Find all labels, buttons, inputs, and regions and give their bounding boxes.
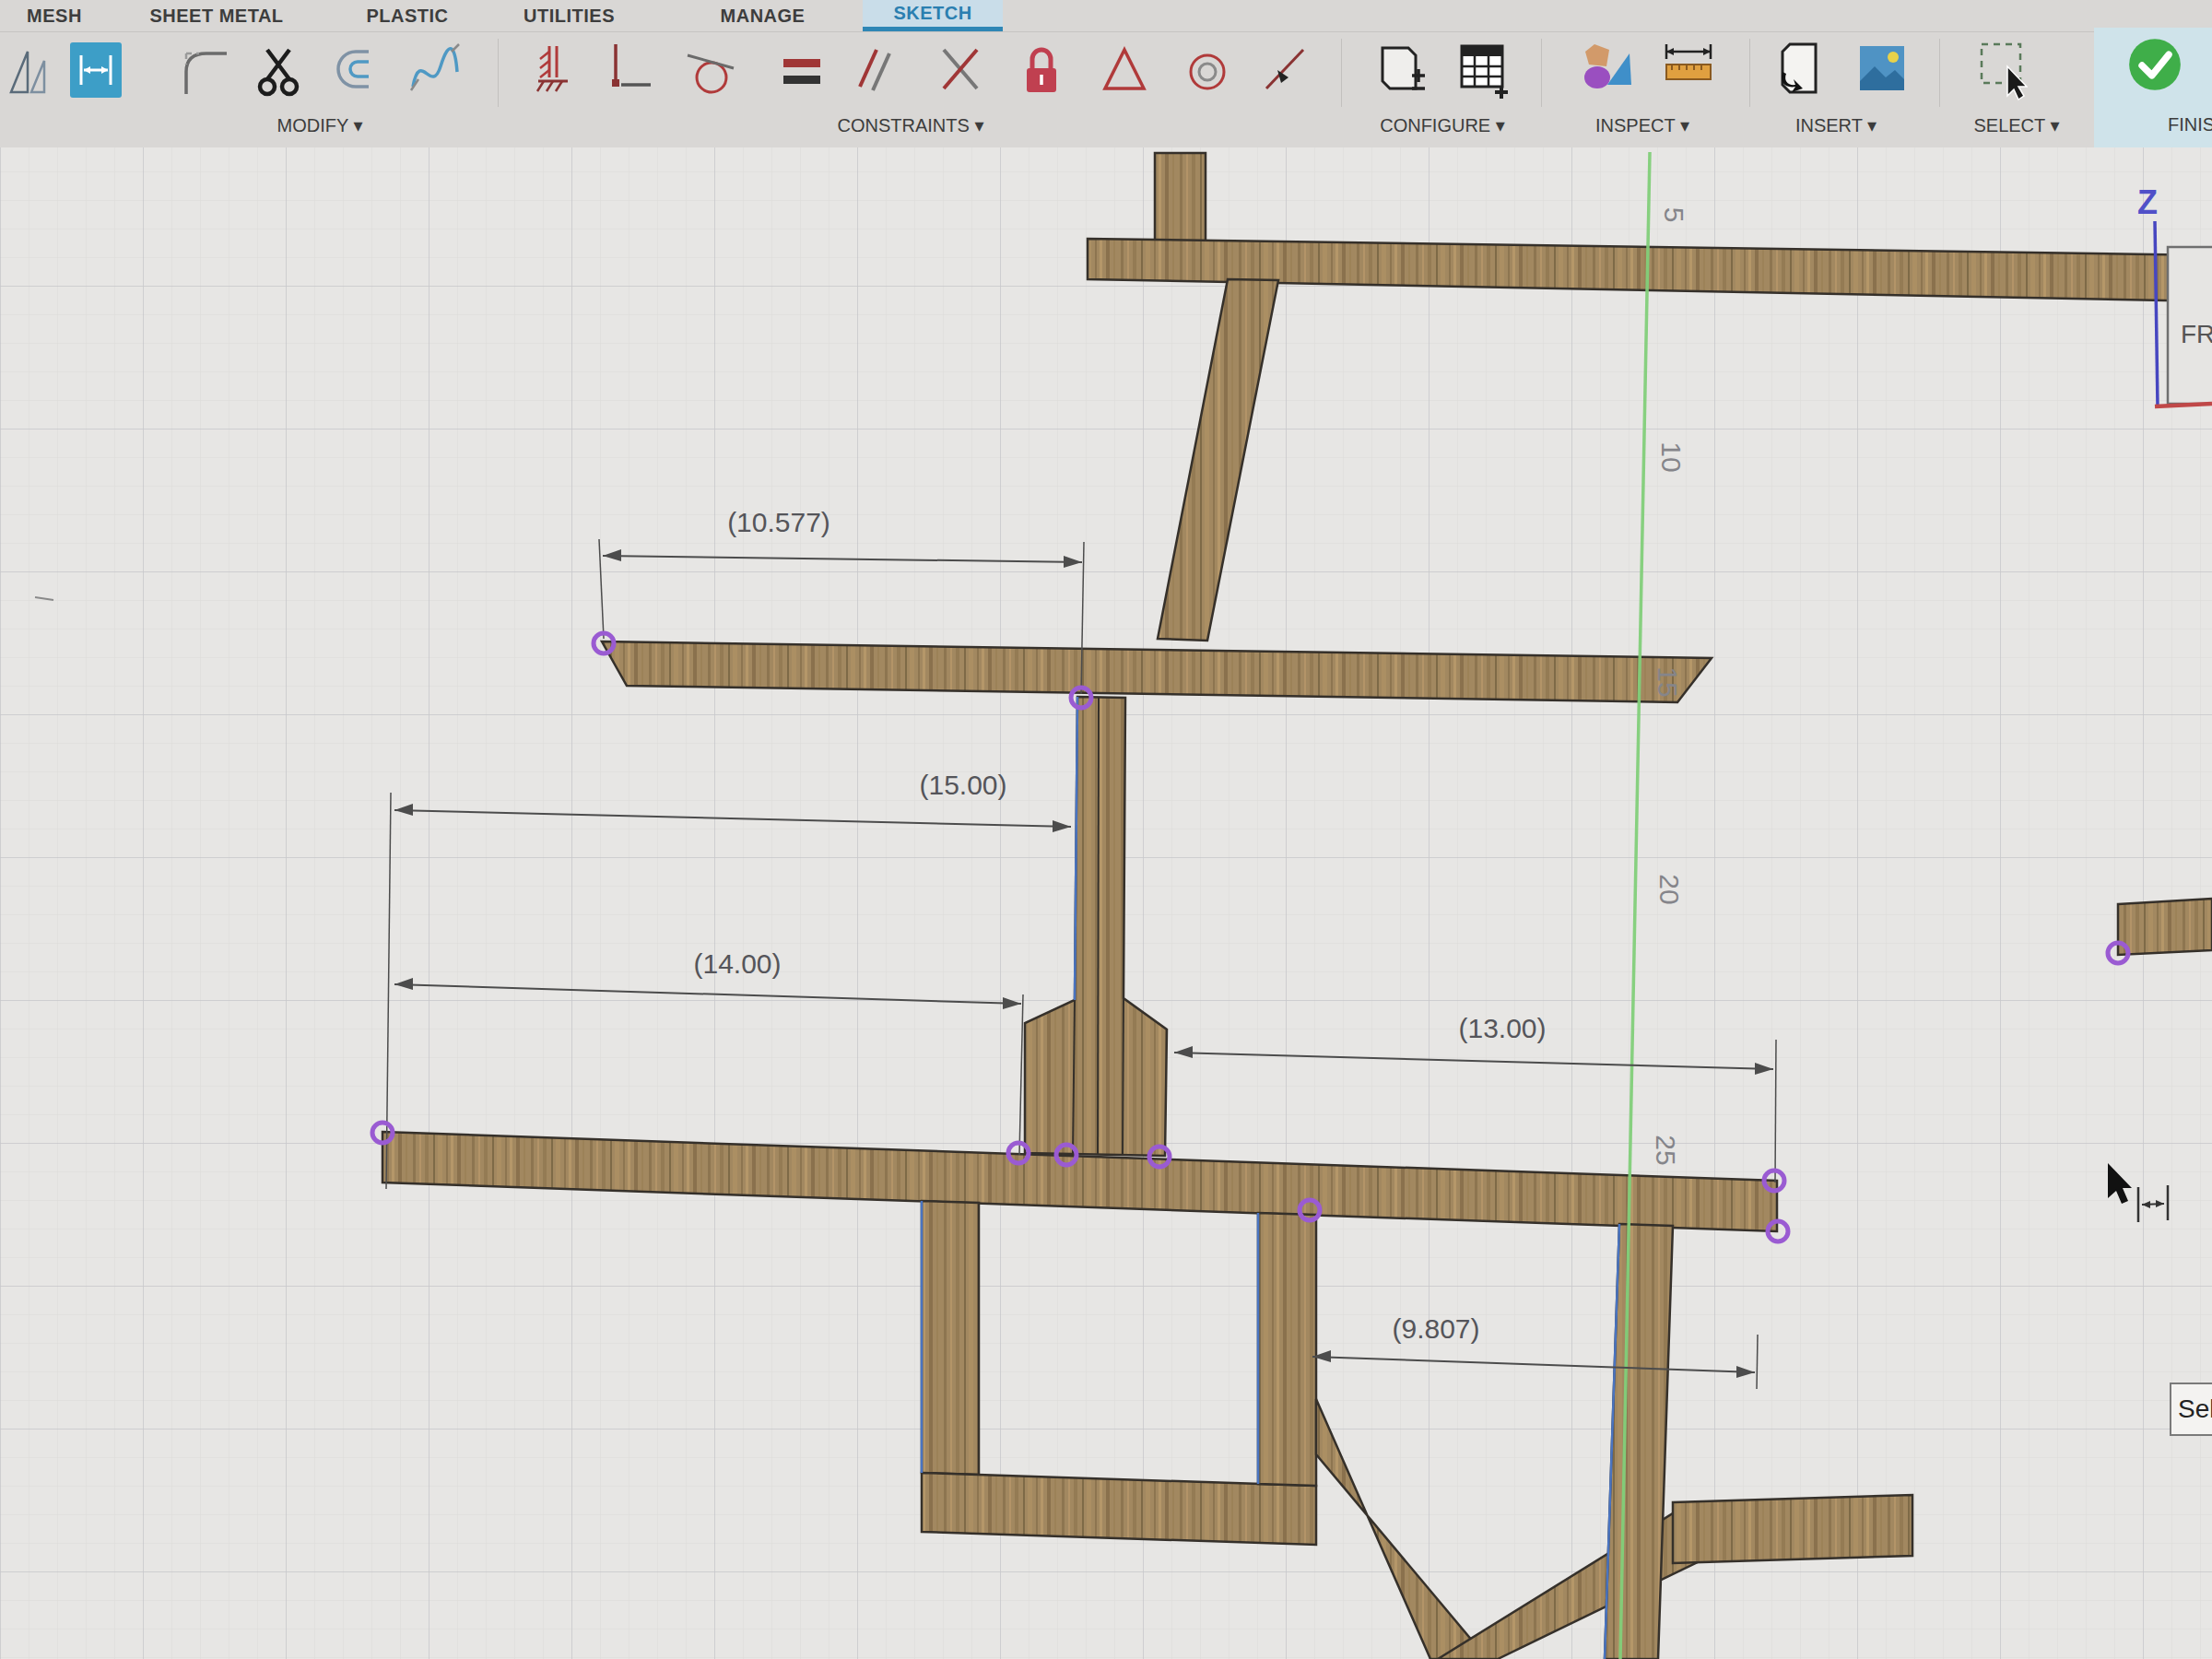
insert-canvas-button[interactable] <box>1853 39 1912 109</box>
configuration-table-button[interactable] <box>1454 39 1513 109</box>
fillet-button[interactable] <box>175 39 234 109</box>
tab-sheet-metal[interactable]: SHEET METAL <box>147 0 286 31</box>
tab-label: PLASTIC <box>366 6 448 27</box>
equal-constraint-button[interactable] <box>772 39 831 109</box>
z-axis-label: Z <box>2137 183 2158 221</box>
offset-button[interactable] <box>328 39 387 109</box>
inspect-group-label[interactable]: INSPECT ▾ <box>1569 114 1716 136</box>
grid-number: 15 <box>1653 666 1683 697</box>
cursor-tooltip: Sel <box>2170 1382 2212 1436</box>
constraints-group-label[interactable]: CONSTRAINTS ▾ <box>818 114 1003 136</box>
select-group-label[interactable]: SELECT ▾ <box>1943 114 2090 136</box>
dimension-value[interactable]: (10.577) <box>727 507 830 537</box>
concentric-constraint-button[interactable] <box>1178 39 1237 109</box>
midpoint-constraint-icon <box>1259 39 1311 105</box>
sketch-canvas[interactable]: (10.577) (15.00) (14.00) (13.00) (9.807) <box>0 147 2212 1659</box>
offset-icon <box>332 39 383 105</box>
view-box-red-edge <box>2155 404 2212 406</box>
toolbar-divider <box>498 39 499 107</box>
tab-label: MESH <box>27 6 82 27</box>
tab-plastic[interactable]: PLASTIC <box>361 0 453 31</box>
top-post-profile[interactable] <box>1155 153 1206 241</box>
select-window-icon <box>1976 39 2028 105</box>
equal-constraint-icon <box>776 39 828 105</box>
table-left-post-profile[interactable] <box>922 1201 979 1475</box>
tab-mesh[interactable]: MESH <box>22 0 87 31</box>
configure-parameters-icon <box>1375 39 1427 105</box>
right-edge-beam-profile[interactable] <box>2118 899 2212 955</box>
grid-number: 5 <box>1659 207 1689 223</box>
trim-scissors-icon <box>254 39 306 105</box>
scale-tool-button[interactable] <box>0 39 59 109</box>
grid-number: 25 <box>1651 1135 1681 1165</box>
configuration-table-icon <box>1458 39 1510 105</box>
symmetry-constraint-icon <box>1099 39 1150 105</box>
insert-decal-button[interactable] <box>1771 39 1830 109</box>
horizontal-vertical-constraint-icon <box>603 39 654 105</box>
view-label-text: FR <box>2181 320 2212 348</box>
inspect-button[interactable] <box>1578 39 1637 109</box>
toolbar-divider <box>1341 39 1342 107</box>
parallel-constraint-button[interactable] <box>843 39 902 109</box>
fillet-icon <box>179 39 230 105</box>
tab-manage[interactable]: MANAGE <box>714 0 811 31</box>
grid-number: 20 <box>1654 874 1685 904</box>
perpendicular-constraint-button[interactable] <box>931 39 990 109</box>
symmetry-constraint-button[interactable] <box>1095 39 1154 109</box>
inspect-primitives-icon <box>1582 39 1633 105</box>
sketch-dimension-button[interactable] <box>66 39 125 109</box>
dimension-value[interactable]: (9.807) <box>1392 1313 1479 1344</box>
sketch-dimension-icon <box>70 39 122 105</box>
lock-constraint-icon <box>1016 39 1067 105</box>
insert-group-label[interactable]: INSERT ▾ <box>1762 114 1910 136</box>
dimension-value[interactable]: (14.00) <box>693 948 781 979</box>
fusion-window: MESH SHEET METAL PLASTIC UTILITIES MANAG… <box>0 0 2212 1659</box>
parallel-constraint-icon <box>847 39 899 105</box>
trim-button[interactable] <box>251 39 310 109</box>
cursor-tooltip-text: Sel <box>2178 1394 2212 1424</box>
sketch-viewport: (10.577) (15.00) (14.00) (13.00) (9.807) <box>0 147 2212 1659</box>
tab-row: MESH SHEET METAL PLASTIC UTILITIES MANAG… <box>0 0 2212 32</box>
grid-number: 10 <box>1656 441 1687 472</box>
lock-constraint-button[interactable] <box>1012 39 1071 109</box>
configure-group-label[interactable]: CONFIGURE ▾ <box>1350 114 1535 136</box>
dimension-value[interactable]: (15.00) <box>919 770 1006 800</box>
tab-label: SKETCH <box>893 3 971 24</box>
ground-constraint-icon <box>529 39 581 105</box>
modify-group-label[interactable]: MODIFY ▾ <box>258 114 382 136</box>
right-stub-beam-profile[interactable] <box>1673 1495 1912 1563</box>
measure-icon <box>1663 39 1714 105</box>
tab-label: MANAGE <box>721 6 806 27</box>
scale-triangles-icon <box>4 39 55 105</box>
select-button[interactable] <box>1972 39 2031 109</box>
insert-canvas-icon <box>1856 39 1908 105</box>
tangent-constraint-icon <box>684 39 735 105</box>
toolbar-divider <box>1541 39 1542 107</box>
configure-parameters-button[interactable] <box>1371 39 1430 109</box>
midpoint-constraint-button[interactable] <box>1255 39 1314 109</box>
toolbar-divider <box>1749 39 1750 107</box>
dimension-value[interactable]: (13.00) <box>1458 1013 1546 1043</box>
tab-utilities[interactable]: UTILITIES <box>525 0 613 31</box>
measure-button[interactable] <box>1659 39 1718 109</box>
toolbar-divider <box>1939 39 1940 107</box>
tab-label: UTILITIES <box>524 6 615 27</box>
spline-button[interactable] <box>406 39 465 109</box>
ground-constraint-button[interactable] <box>525 39 584 109</box>
horizontal-vertical-constraint-button[interactable] <box>599 39 658 109</box>
perpendicular-constraint-icon <box>935 39 986 105</box>
spline-icon <box>409 39 461 105</box>
toolbar: MESH SHEET METAL PLASTIC UTILITIES MANAG… <box>0 0 2212 147</box>
finish-sketch-check-icon <box>2127 37 2183 92</box>
finish-sketch-label[interactable]: FINISH SK <box>2168 114 2212 135</box>
table-right-post-profile[interactable] <box>1258 1213 1316 1486</box>
tab-label: SHEET METAL <box>149 6 283 27</box>
tangent-constraint-button[interactable] <box>680 39 739 109</box>
insert-decal-icon <box>1775 39 1827 105</box>
tab-sketch[interactable]: SKETCH <box>863 0 1003 31</box>
concentric-constraint-icon <box>1182 39 1233 105</box>
